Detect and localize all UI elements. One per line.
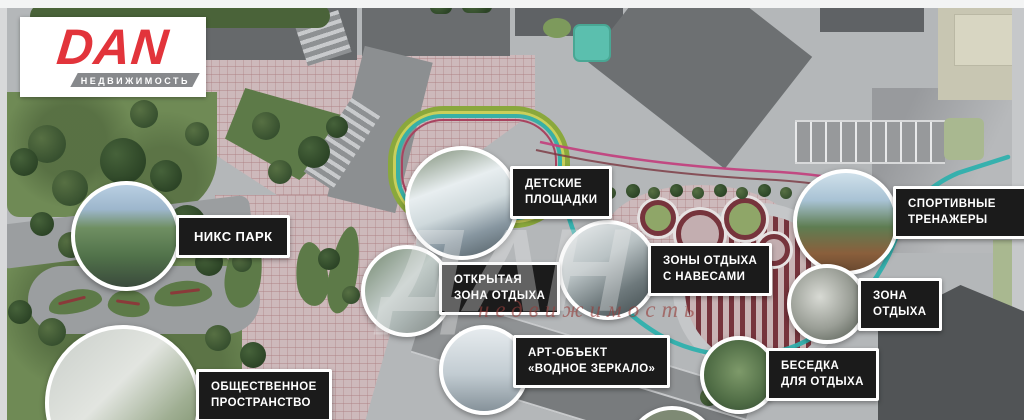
- callout-label-gazebo-for-rest: БЕСЕДКА ДЛЯ ОТДЫХА: [766, 348, 879, 401]
- planter-ring: [640, 200, 676, 236]
- tree: [626, 184, 640, 198]
- tree: [670, 184, 683, 197]
- tree: [185, 122, 209, 146]
- tree: [342, 286, 360, 304]
- tree: [298, 136, 330, 168]
- callout-photo-rest-zone: [787, 264, 867, 344]
- tree: [30, 212, 54, 236]
- callout-label-public-space: ОБЩЕСТВЕННОЕ ПРОСТРАНСТВО: [196, 369, 332, 420]
- tree: [268, 160, 292, 184]
- tree: [692, 187, 704, 199]
- frame-edge: [0, 0, 1024, 8]
- dan-logo-tagline: НЕДВИЖИМОСТЬ: [81, 76, 190, 86]
- tree: [150, 160, 182, 192]
- planter-ring: [724, 198, 766, 240]
- parking-stalls: [795, 120, 945, 164]
- building-roof: [954, 14, 1014, 66]
- tree: [780, 187, 792, 199]
- tree: [8, 300, 32, 324]
- building-roof: [820, 8, 924, 32]
- frame-edge: [0, 8, 7, 420]
- dan-logo-wordmark: DAN: [17, 19, 209, 75]
- callout-photo-canopy-rest-zones: [558, 220, 658, 320]
- building-roof: [362, 8, 510, 56]
- tree: [252, 112, 280, 140]
- lawn: [543, 18, 571, 38]
- callout-photo-children-playgrounds: [405, 146, 519, 260]
- tree: [648, 187, 660, 199]
- callout-photo-niks-park: [71, 181, 181, 291]
- callout-photo-sport-equipment: [793, 169, 899, 275]
- callout-label-canopy-rest-zones: ЗОНЫ ОТДЫХА С НАВЕСАМИ: [648, 243, 772, 296]
- tree: [736, 187, 748, 199]
- callout-label-open-rest-zone: ОТКРЫТАЯ ЗОНА ОТДЫХА: [439, 262, 560, 315]
- tree: [10, 148, 38, 176]
- tree: [100, 138, 146, 184]
- site-masterplan: НИКС ПАРК ДЕТСКИЕ ПЛОЩАДКИ ОТКРЫТАЯ ЗОНА…: [0, 0, 1024, 420]
- tree: [130, 100, 158, 128]
- tree: [326, 116, 348, 138]
- callout-label-children-playgrounds: ДЕТСКИЕ ПЛОЩАДКИ: [510, 166, 612, 219]
- tree: [38, 318, 66, 346]
- callout-label-niks-park: НИКС ПАРК: [176, 215, 290, 258]
- tree: [714, 184, 727, 197]
- callout-label-rest-zone: ЗОНА ОТДЫХА: [858, 278, 942, 331]
- tree: [240, 342, 266, 368]
- callout-label-sport-equipment: СПОРТИВНЫЕ ТРЕНАЖЕРЫ: [893, 186, 1024, 239]
- tree: [205, 325, 231, 351]
- building-roof: [587, 0, 812, 169]
- callout-label-art-object-water-mirror: АРТ-ОБЪЕКТ «ВОДНОЕ ЗЕРКАЛО»: [513, 335, 670, 388]
- lawn: [944, 118, 984, 160]
- dan-logo: DAN НЕДВИЖИМОСТЬ: [20, 17, 206, 97]
- playground-pad: [573, 24, 611, 62]
- tree: [758, 184, 771, 197]
- tree: [318, 248, 340, 270]
